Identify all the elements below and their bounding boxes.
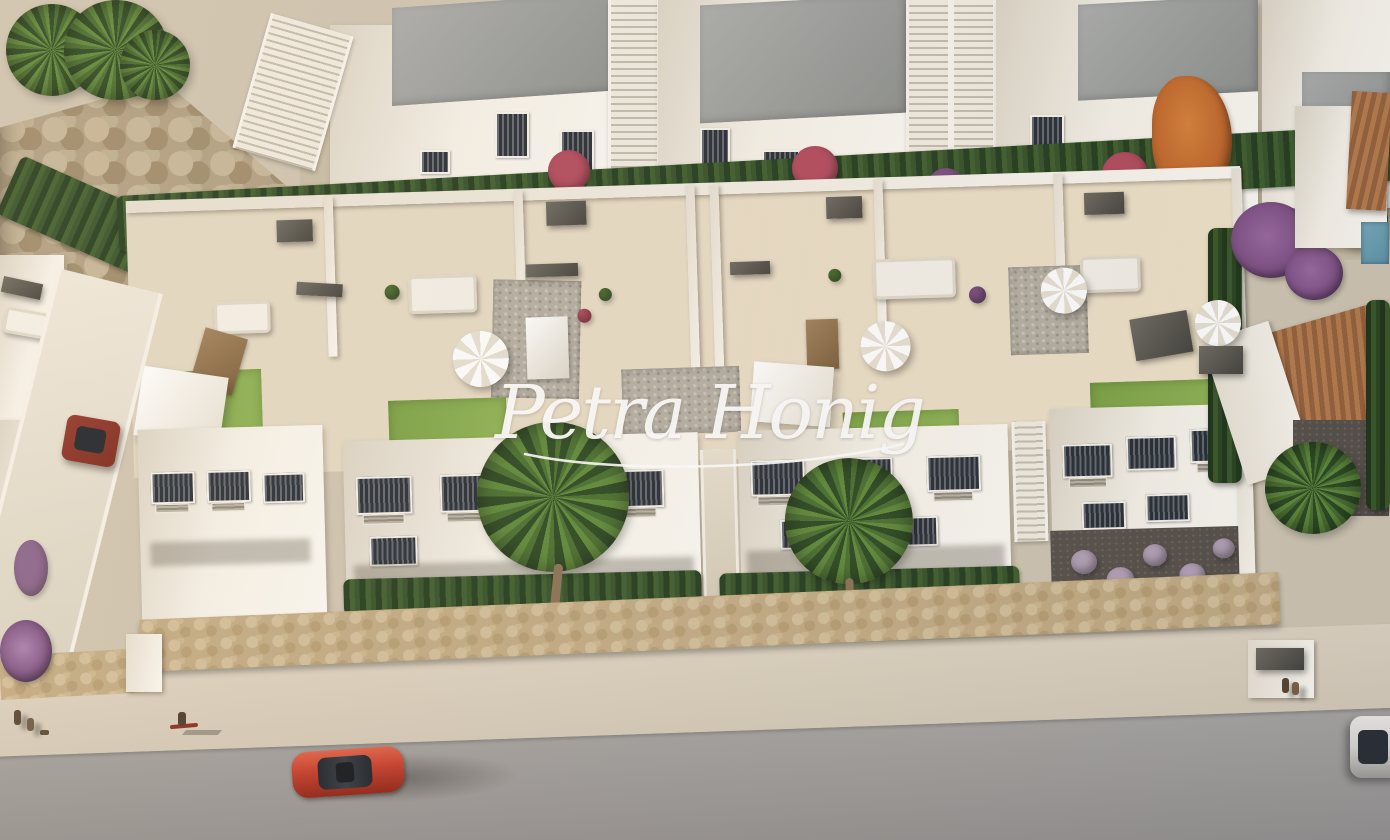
right-edge-hedge: [1366, 300, 1390, 510]
neighbor-villa-group: [1195, 90, 1390, 520]
vent-grille: [155, 503, 189, 513]
corner-house-window: [1062, 443, 1113, 478]
purple-flower-pots: [14, 540, 48, 596]
vent-grille: [363, 514, 405, 525]
vent-grille: [933, 491, 973, 502]
terrace-sofa: [408, 274, 477, 314]
neighbor-palm: [1265, 442, 1361, 534]
porch-shadow: [150, 538, 311, 566]
rooftop-utility-box: [546, 201, 587, 226]
outdoor-kitchen-bar: [526, 263, 578, 278]
rooftop-utility-box: [826, 196, 863, 219]
palm-tree: [120, 30, 190, 100]
watermark-flourish: [495, 440, 915, 480]
entrance-kiosk: [1248, 640, 1314, 698]
terrace-sofa: [873, 257, 956, 300]
terracotta-roof-small: [1346, 91, 1390, 211]
neighbor-seating: [1199, 346, 1243, 374]
outdoor-kitchen-bar: [296, 282, 343, 298]
pedestrian: [27, 718, 34, 731]
cyclist-shadow: [182, 730, 222, 735]
aerial-render-scene: Petra Honig: [0, 0, 1390, 840]
dog: [40, 730, 49, 735]
gate-pillar: [126, 634, 162, 692]
red-car: [290, 740, 410, 804]
purple-bush-street: [0, 620, 52, 682]
terrace-sofa: [214, 301, 271, 335]
facade-window: [150, 471, 195, 504]
corner-lower-window: [1081, 501, 1126, 530]
townhouse-lower-window: [369, 535, 418, 566]
facade-window: [262, 472, 305, 503]
parked-car-dark-red: [60, 414, 121, 469]
pedestrian-couple: [1282, 678, 1289, 693]
rooftop-utility-box: [276, 219, 313, 242]
facade-window: [206, 470, 251, 503]
corner-lower-window: [1145, 493, 1190, 522]
outdoor-kitchen-bar: [730, 261, 770, 275]
vent-grille: [211, 502, 245, 512]
vent-grille: [1069, 477, 1107, 488]
pedestrian-couple: [1292, 682, 1299, 695]
rooftop-utility-box: [1084, 192, 1125, 215]
pedestrian: [14, 710, 21, 725]
villa1-window: [420, 150, 450, 174]
left-villa-facade: [137, 425, 327, 620]
silver-car-partial: [1350, 716, 1390, 778]
townhouse-window: [926, 455, 981, 492]
red-car-sunroof: [335, 762, 354, 783]
cyclist-figure: [178, 712, 186, 726]
entrance-kiosk-panel: [1256, 648, 1304, 670]
cyclist: [168, 712, 220, 740]
villa-roof-1: [392, 0, 622, 106]
villa1-window: [495, 112, 529, 158]
pool-glimpse: [1361, 222, 1389, 264]
terrace-sofa: [1080, 255, 1141, 293]
side-stair: [1011, 421, 1048, 542]
silver-car-glass: [1358, 730, 1388, 764]
townhouse-window: [356, 476, 413, 515]
parked-car-glass: [73, 425, 107, 454]
villa-roof-2: [700, 0, 906, 123]
corner-house-window: [1126, 436, 1177, 471]
neighbor-parasol: [1195, 300, 1241, 346]
bougainvillea: [1285, 246, 1343, 300]
